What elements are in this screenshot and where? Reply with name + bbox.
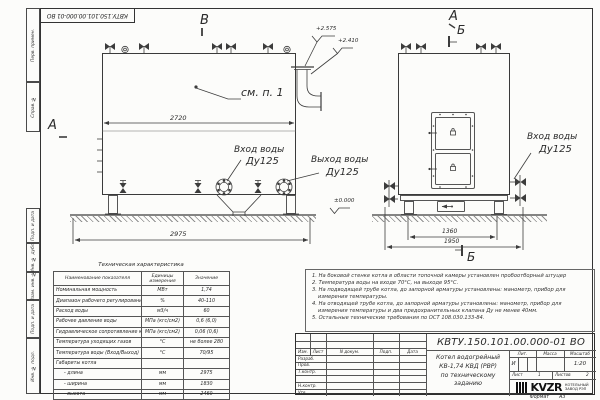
margin-box-inv-podl: Инв. № подл. xyxy=(26,338,40,394)
product-name-line: КВ-1,74 КВД (РВР) xyxy=(427,363,509,372)
table-row: Диапазон рабочего регулирования%40-110 xyxy=(54,296,230,306)
table-row: Температура уходящих газов°Сне более 280 xyxy=(54,337,230,347)
inlet-front-label: Вход воды xyxy=(527,133,577,142)
rev-col-list: Лист xyxy=(310,350,326,354)
section-label-b-bottom: Б xyxy=(467,251,475,263)
note-5: 5. Остальные технические требования по О… xyxy=(312,315,590,322)
table-row: - ширинамм1830 xyxy=(54,379,230,389)
rev-col-izm: Изм. xyxy=(296,350,310,354)
note-3: 3. На подводящей трубе котла, до запорно… xyxy=(312,287,590,301)
ground-hatch-right xyxy=(372,216,547,223)
upper-door xyxy=(435,117,471,150)
margin-label: Инв. № подл. xyxy=(31,351,36,382)
table-row: Габариты котла xyxy=(54,358,230,368)
table-row: Гидравлическое сопротивление котлаМПа (к… xyxy=(54,327,230,337)
rev-col-podp: Подп. xyxy=(373,350,399,354)
col-header: Единицы измерения xyxy=(142,272,184,286)
sign-row-tkontr: Т.контр. xyxy=(298,370,316,374)
margin-label: Подп. и дата xyxy=(31,211,36,241)
top-stamp: КВТУ.150.101.00.000-01 ВО xyxy=(40,8,135,23)
dimension-2720: 2720 xyxy=(170,115,187,122)
product-name: Котел водогрейный КВ-1,74 КВД (РВР) по т… xyxy=(427,354,509,389)
sign-row-razrab: Разраб. xyxy=(298,357,314,361)
burner-box xyxy=(437,201,465,212)
view-label-a-left: А xyxy=(48,119,57,132)
sign-row-prov: Пров. xyxy=(298,363,310,367)
doc-number: КВТУ.150.101.00.000-01 ВО xyxy=(427,335,595,349)
section-label-b-top: Б xyxy=(457,24,465,36)
margin-box-sprav-n: Справ. № xyxy=(26,82,40,132)
sheets-label: Листов xyxy=(555,373,571,377)
lit-value: И xyxy=(509,362,518,368)
ground-hatch-left xyxy=(70,216,316,223)
tech-table-header: Наименование показателя Единицы измерени… xyxy=(54,272,230,286)
sheet-label: Лист xyxy=(512,373,523,377)
product-name-line: Котел водогрейный xyxy=(427,354,509,363)
margin-box-vzam-inv: Взам. инв. № xyxy=(26,272,40,300)
table-row: - длинамм2975 xyxy=(54,369,230,379)
format-value: А3 xyxy=(559,395,565,400)
dimension-2975: 2975 xyxy=(170,231,187,238)
margin-label: Инв. № дубл. xyxy=(31,242,36,272)
format-note: Формат А3 xyxy=(505,395,590,400)
kvzr-logo-mark-icon xyxy=(516,382,527,393)
top-stamp-number: КВТУ.150.101.00.000-01 ВО xyxy=(47,12,128,19)
margin-label: Подп. и дата xyxy=(31,304,36,334)
note-4: 4. На отводящей трубе котла, до запорной… xyxy=(312,301,590,315)
col-header: Наименование показателя xyxy=(54,272,142,286)
rev-col-docnum: N докум. xyxy=(326,350,373,354)
note-1: 1. На боковой стенке котла в области топ… xyxy=(312,273,590,280)
margin-box-podp-data-1: Подп. и дата xyxy=(26,208,40,243)
side-view-leg-left xyxy=(108,195,118,214)
elevation-value: +2.410 xyxy=(338,39,358,45)
kvzr-logo-text: KVZR xyxy=(530,381,561,394)
view-label-a-right: А xyxy=(449,10,458,23)
dimension-1360: 1360 xyxy=(442,229,457,235)
dimension-1950: 1950 xyxy=(444,239,459,245)
front-view-leg-left xyxy=(404,201,414,214)
table-row: Расход водым3/ч60 xyxy=(54,306,230,316)
mass-header: Масса xyxy=(536,352,564,356)
kvzr-logo: KVZR КОТЕЛЬНЫЙ ЗАВОД РЭП xyxy=(509,379,596,395)
margin-label: Справ. № xyxy=(31,96,36,118)
margin-box-perv-primen: Перв. примен. xyxy=(26,8,40,82)
scale-value: 1:20 xyxy=(564,362,596,368)
table-row: Рабочее давление водыМПа (кгс/см2)0,6 (6… xyxy=(54,317,230,327)
title-block: Изм. Лист N докум. Подп. Дата Разраб. Пр… xyxy=(295,333,595,395)
inlet-front-dn: Ду125 xyxy=(539,145,572,155)
product-name-line: по техническому заданию xyxy=(427,372,509,390)
table-row: - высотамм2460 xyxy=(54,389,230,399)
margin-label: Взам. инв. № xyxy=(31,271,36,301)
front-view-leg-right xyxy=(494,201,504,214)
drawing-sheet: Перв. примен. Справ. № Подп. и дата Инв.… xyxy=(0,0,600,400)
side-view-leg-right xyxy=(286,195,296,214)
lit-header: Лит. xyxy=(509,352,536,356)
sign-row-nkontr: Н.контр. xyxy=(298,384,317,388)
company-name: КОТЕЛЬНЫЙ ЗАВОД РЭП xyxy=(565,383,589,392)
tech-table-title: Техническая характеристика xyxy=(53,263,229,269)
elevation-value: ±0.000 xyxy=(334,199,354,205)
see-note-label: см. п. 1 xyxy=(241,87,284,98)
scale-header: Масштаб xyxy=(564,352,596,356)
tech-table: Наименование показателя Единицы измерени… xyxy=(53,271,230,400)
sheet-number: 1 xyxy=(538,373,541,377)
lower-door xyxy=(435,153,471,185)
view-label-v: В xyxy=(200,14,209,27)
inlet-side-dn: Ду125 xyxy=(246,157,279,167)
outlet-dn: Ду125 xyxy=(326,168,359,178)
inlet-side-label: Вход воды xyxy=(234,146,284,155)
boiler-side-view-body xyxy=(102,53,296,195)
outlet-label: Выход воды xyxy=(311,156,368,165)
table-row: Температура воды (Вход/Выход)°С70/95 xyxy=(54,348,230,358)
margin-box-podp-data-2: Подп. и дата xyxy=(26,300,40,338)
table-row: Номинальная мощностьМВт1,74 xyxy=(54,286,230,296)
sign-row-utv: Утв. xyxy=(298,391,307,395)
margin-box-inv-dubl: Инв. № дубл. xyxy=(26,243,40,272)
margin-label: Перв. примен. xyxy=(31,29,36,62)
col-header: Значение xyxy=(184,272,230,286)
format-label: Формат xyxy=(530,395,549,400)
rev-col-data: Дата xyxy=(399,350,426,354)
elevation-value: +2.575 xyxy=(316,27,336,33)
note-2: 2. Температура воды на входе 70°С, на вы… xyxy=(312,280,590,287)
sheets-total: 2 xyxy=(586,373,589,377)
notes-block: 1. На боковой стенке котла в области топ… xyxy=(305,269,595,332)
